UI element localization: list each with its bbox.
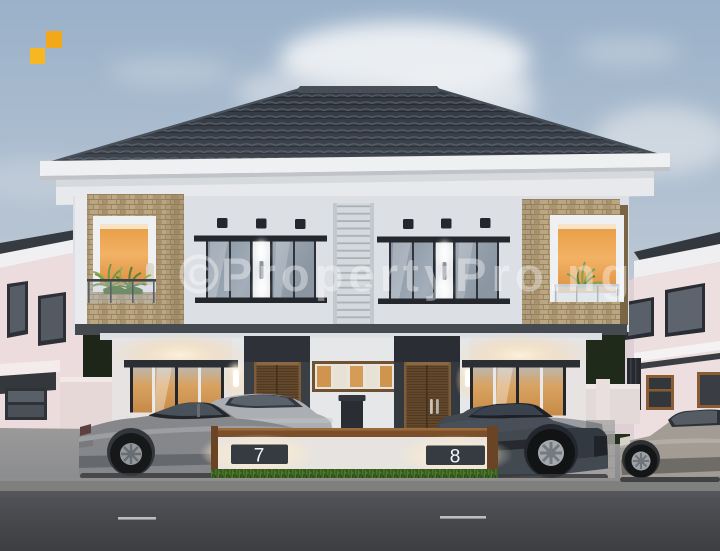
- svg-text:8: 8: [450, 447, 461, 468]
- svg-text:PropertyPro.ng: PropertyPro.ng: [221, 248, 635, 301]
- svg-text:7: 7: [254, 446, 265, 467]
- svg-text:C: C: [188, 259, 210, 292]
